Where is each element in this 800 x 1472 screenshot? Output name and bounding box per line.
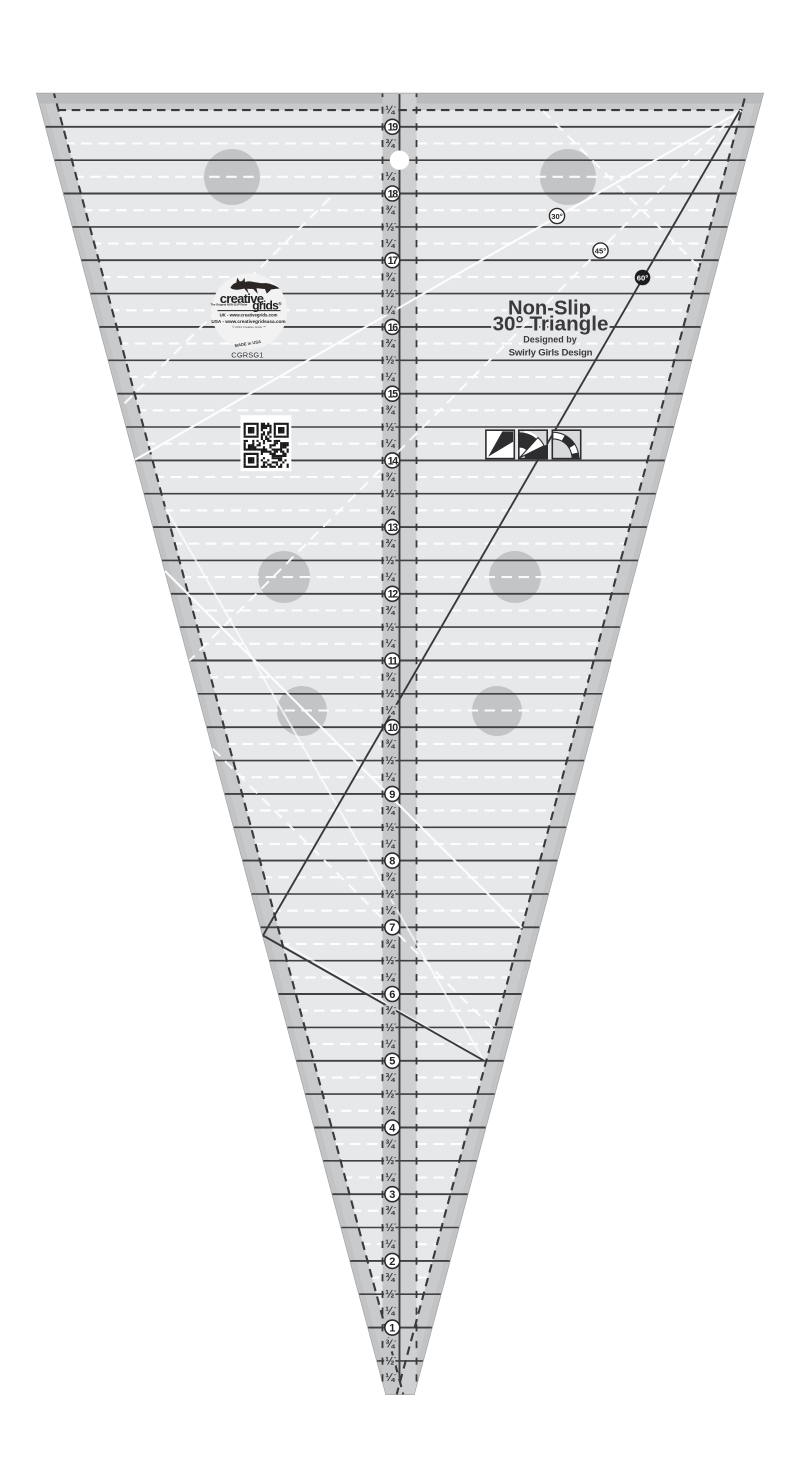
svg-text:13: 13 (388, 522, 399, 534)
svg-text:2: 2 (389, 1256, 395, 1268)
svg-text:9: 9 (389, 789, 395, 801)
svg-text:10: 10 (388, 722, 399, 734)
svg-text:4: 4 (389, 1122, 396, 1134)
svg-text:7: 7 (389, 922, 395, 934)
svg-text:14: 14 (388, 455, 399, 467)
svg-text:UK - www.creativegrids.com: UK - www.creativegrids.com (220, 313, 278, 318)
svg-text:USA - www.creativegridsusa.com: USA - www.creativegridsusa.com (211, 319, 285, 324)
svg-text:12: 12 (388, 589, 399, 601)
svg-text:Designed by: Designed by (523, 335, 577, 345)
svg-text:45°: 45° (595, 247, 606, 256)
svg-text:The Original NON-SLIP Ruler: The Original NON-SLIP Ruler (211, 303, 248, 307)
svg-text:5: 5 (389, 1056, 395, 1068)
svg-text:© 2014 Creative Grids ™: © 2014 Creative Grids ™ (232, 325, 266, 329)
svg-text:Swirly Girls Design: Swirly Girls Design (509, 348, 593, 359)
svg-text:16: 16 (388, 322, 399, 334)
svg-text:30° Triangle: 30° Triangle (493, 312, 609, 335)
svg-text:18: 18 (388, 188, 399, 200)
svg-text:30°: 30° (551, 212, 562, 221)
svg-text:1: 1 (389, 1323, 395, 1335)
svg-text:3: 3 (389, 1189, 395, 1201)
svg-text:6: 6 (389, 989, 395, 1001)
svg-text:19: 19 (388, 122, 399, 134)
svg-text:60°: 60° (637, 274, 648, 283)
svg-text:15: 15 (388, 389, 399, 401)
svg-text:CGRSG1: CGRSG1 (231, 350, 263, 359)
svg-text:11: 11 (388, 655, 398, 667)
svg-text:8: 8 (389, 856, 395, 868)
svg-text:17: 17 (388, 255, 399, 267)
